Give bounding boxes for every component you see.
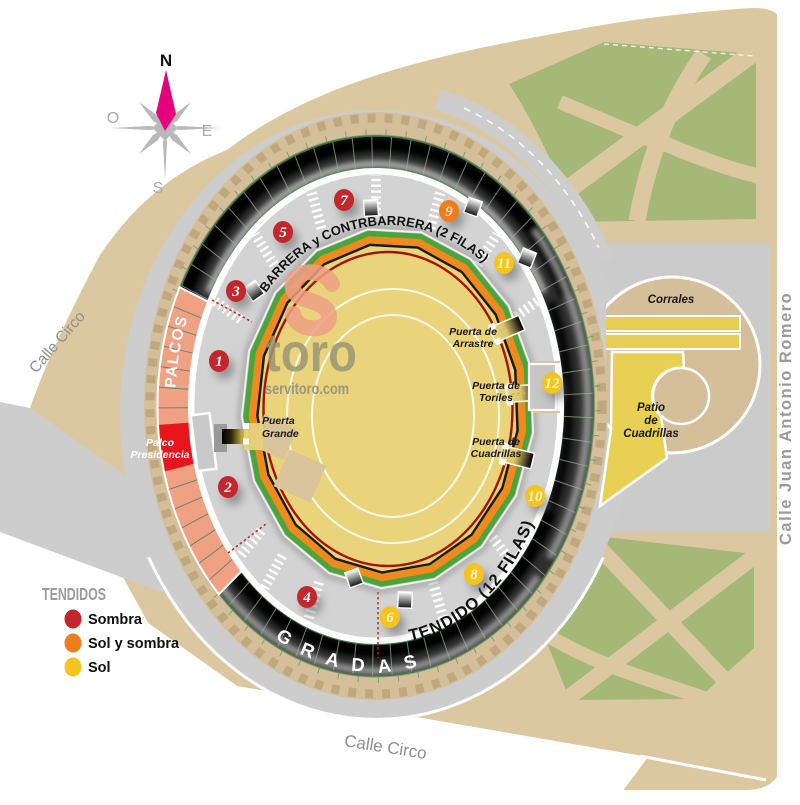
svg-text:S: S	[153, 180, 164, 197]
svg-text:O: O	[107, 110, 119, 127]
svg-text:9: 9	[445, 204, 453, 220]
svg-text:Sol y sombra: Sol y sombra	[88, 636, 180, 652]
svg-text:N: N	[160, 51, 172, 70]
svg-text:3: 3	[231, 284, 240, 300]
svg-text:E: E	[202, 123, 213, 140]
svg-text:Puerta de: Puerta de	[449, 326, 497, 338]
svg-text:de: de	[644, 415, 658, 427]
svg-text:7: 7	[340, 193, 348, 209]
svg-text:2: 2	[223, 480, 232, 496]
svg-text:Patio: Patio	[637, 402, 665, 414]
svg-text:Arrastre: Arrastre	[452, 338, 494, 350]
svg-text:6: 6	[386, 610, 394, 626]
svg-text:11: 11	[497, 256, 511, 272]
svg-text:5: 5	[279, 225, 287, 241]
svg-text:Cuadrillas: Cuadrillas	[471, 448, 522, 460]
svg-text:Puerta de: Puerta de	[472, 436, 520, 448]
svg-text:10: 10	[528, 489, 544, 505]
svg-text:4: 4	[302, 590, 311, 606]
svg-text:Presidencia: Presidencia	[131, 449, 190, 461]
svg-text:Sol: Sol	[88, 660, 111, 676]
svg-text:1: 1	[215, 354, 223, 370]
svg-text:12: 12	[545, 376, 561, 392]
svg-text:Cuadrillas: Cuadrillas	[623, 428, 679, 440]
svg-text:servitoro.com: servitoro.com	[265, 381, 349, 398]
svg-text:Grande: Grande	[262, 428, 299, 440]
svg-text:Sombra: Sombra	[88, 612, 143, 628]
svg-text:8: 8	[470, 567, 478, 583]
svg-text:Toriles: Toriles	[479, 392, 513, 404]
svg-text:Calle Juan Antonio Romero: Calle Juan Antonio Romero	[777, 292, 795, 545]
svg-text:Puerta: Puerta	[262, 415, 295, 427]
svg-text:Puerta de: Puerta de	[472, 380, 520, 392]
svg-text:TENDIDOS: TENDIDOS	[42, 584, 106, 604]
svg-text:Palco: Palco	[146, 437, 175, 449]
svg-text:toro: toro	[265, 323, 357, 383]
svg-text:Corrales: Corrales	[648, 294, 695, 306]
